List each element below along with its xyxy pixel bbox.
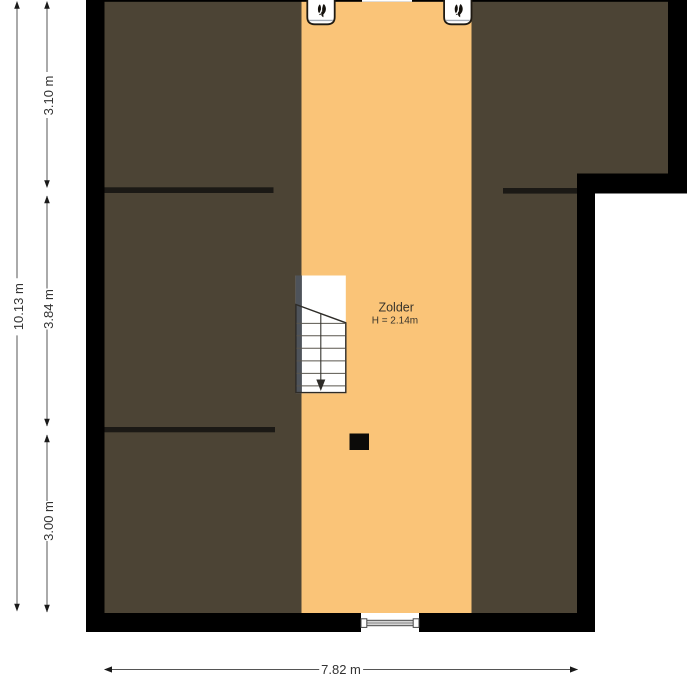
svg-text:3.84 m: 3.84 m [41,289,56,329]
svg-text:3.00 m: 3.00 m [41,501,56,541]
svg-text:Zolder: Zolder [378,301,413,315]
svg-text:7.82 m: 7.82 m [321,662,361,677]
svg-text:H = 2.14m: H = 2.14m [372,316,418,327]
svg-text:3.10 m: 3.10 m [41,76,56,116]
svg-text:10.13 m: 10.13 m [11,283,26,330]
